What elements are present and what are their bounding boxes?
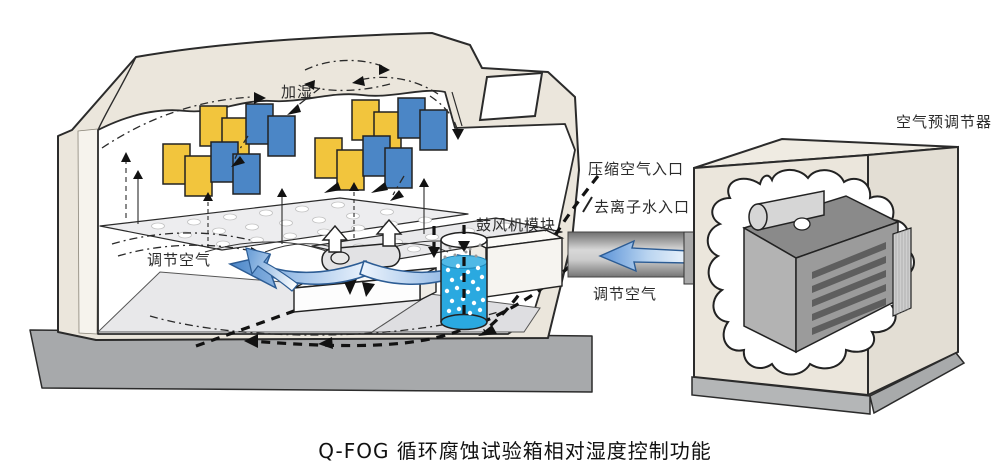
- corrosion-chamber-diagram: 加湿 调节空气 鼓风机模块 压缩空气入口 去离子水入口 调节空气 空气预调节器 …: [0, 0, 1000, 472]
- label-humidify: 加湿: [281, 83, 313, 101]
- condenser-grid: [893, 228, 911, 316]
- air-preconditioner-unit: [684, 139, 964, 414]
- conditioned-air-pipe: [568, 232, 700, 277]
- left-wall-band: [78, 129, 98, 334]
- blower-hub: [331, 252, 349, 264]
- label-deionized-water-inlet: 去离子水入口: [594, 198, 690, 216]
- deionized-leader: [583, 197, 592, 212]
- controller-screen: [480, 73, 542, 120]
- humidifier-bubbler: [441, 225, 487, 330]
- label-conditioned-air-chamber: 调节空气: [147, 251, 211, 269]
- label-air-preconditioner: 空气预调节器: [896, 113, 992, 131]
- caption: Q-FOG 循环腐蚀试验箱相对湿度控制功能: [318, 439, 712, 463]
- label-blower-module: 鼓风机模块: [476, 216, 556, 234]
- machine-port: [794, 218, 810, 230]
- label-compressed-air-inlet: 压缩空气入口: [588, 160, 684, 178]
- label-conditioned-air-duct: 调节空气: [593, 285, 657, 303]
- diagram-svg: 加湿 调节空气 鼓风机模块 压缩空气入口 去离子水入口 调节空气 空气预调节器 …: [0, 0, 1000, 472]
